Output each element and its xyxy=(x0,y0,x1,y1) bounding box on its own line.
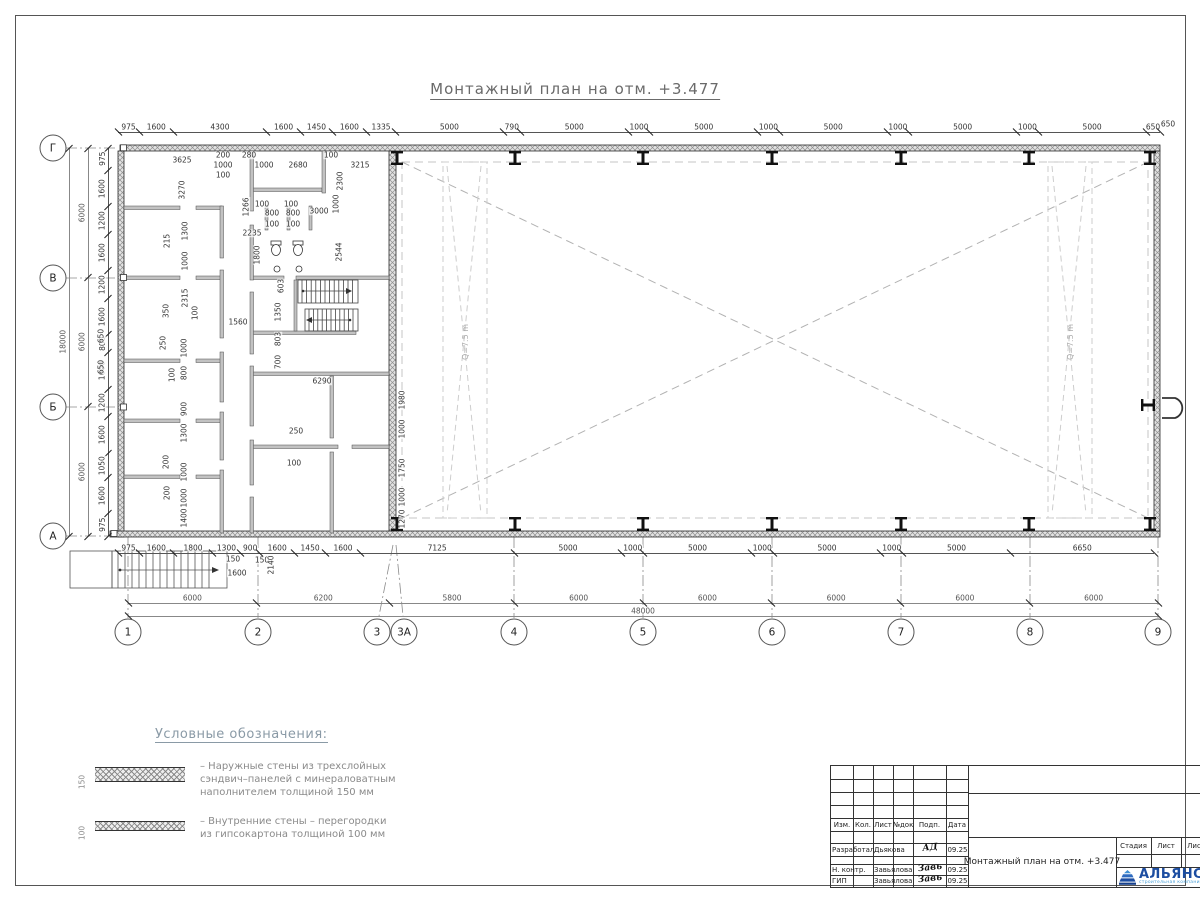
dim-label: 1000 xyxy=(181,251,189,271)
axis-col-7: 7 xyxy=(888,619,915,646)
dim-label: 1800 xyxy=(253,245,261,265)
logo-triangle-icon xyxy=(1119,870,1136,885)
dim-label: 1000 xyxy=(254,161,274,169)
dim-chain-bottom-total: 48000 xyxy=(128,605,1158,617)
dim-label: 1000 xyxy=(332,194,340,214)
dim-segment: 1300 xyxy=(212,542,240,553)
dim-label: 1000 xyxy=(180,462,188,482)
axis-col-9: 9 xyxy=(1145,619,1172,646)
stamp-role-gip: ГИП xyxy=(832,875,874,887)
dim-segment: 7125 xyxy=(360,542,514,553)
stamp-doc-title: Монтажный план на отм. +3.477 xyxy=(968,837,1116,887)
dim-label: 100 xyxy=(286,459,301,467)
dim-label: 1000 xyxy=(213,161,233,169)
dim-chain-left-spans: 600060006000 xyxy=(77,148,89,536)
dim-segment: 6000 xyxy=(128,592,257,603)
dim-segment: 5000 xyxy=(773,542,881,553)
dim-label: 1266 xyxy=(242,197,250,217)
stamp-role-ncontrol: Н. контр. xyxy=(832,864,874,875)
toilet-fixtures xyxy=(271,241,303,272)
exterior-stair xyxy=(70,551,227,588)
dim-label: 3625 xyxy=(172,156,192,164)
dim-segment: 1450 xyxy=(301,121,332,132)
logo-subtext: строительная компания xyxy=(1139,881,1200,886)
dim-label: 1000 xyxy=(180,488,188,508)
dim-segment: 6000 xyxy=(77,407,88,536)
stamp-list: Лист xyxy=(1151,837,1181,854)
dim-label: 350 xyxy=(162,303,170,318)
dim-label: 1750 xyxy=(398,458,406,478)
hall-dashed-markings xyxy=(402,162,1148,518)
drawing-sheet: Монтажный план на отм. +3.477 xyxy=(0,0,1200,900)
dim-label: 1000 xyxy=(398,487,406,507)
stamp-col-kol: Кол. xyxy=(853,818,873,831)
dim-segment: 48000 xyxy=(128,605,1158,616)
dim-segment: 1000 xyxy=(751,542,773,553)
stamp-name-ncontrol: Завьялова xyxy=(874,864,913,875)
dim-segment: 5000 xyxy=(514,542,622,553)
dim-label: 1400 xyxy=(180,508,188,528)
steel-columns xyxy=(391,151,1156,531)
dim-segment: 5000 xyxy=(903,542,1011,553)
dim-label: 1980 xyxy=(398,390,406,410)
dim-segment: 1600 xyxy=(260,542,295,553)
dim-segment: 1600 xyxy=(97,234,108,271)
dim-segment: 1000 xyxy=(1017,121,1039,132)
dim-label: 1270 xyxy=(398,509,406,529)
dim-label: 215 xyxy=(163,233,171,248)
dim-label: 800 xyxy=(264,209,279,217)
stamp-date-developer: 09.25 xyxy=(947,843,968,856)
company-logo: АЛЬЯНС строительная компания xyxy=(1119,867,1200,887)
dim-segment: 1600 xyxy=(326,542,361,553)
axis-col-3: 3 xyxy=(364,619,391,646)
dim-segment: 975 xyxy=(97,148,108,170)
dim-label: 1000 xyxy=(180,338,188,358)
dim-label: 2544 xyxy=(335,242,343,262)
stamp-stadia: Стадия xyxy=(1116,837,1151,854)
right-wall-ladder xyxy=(1162,398,1182,418)
legend-dim-100: 100 xyxy=(78,826,87,840)
dim-segment: 975 xyxy=(118,542,139,553)
stamp-col-izm: Изм. xyxy=(831,818,853,831)
dim-label: 2300 xyxy=(336,171,344,191)
stamp-col-podp: Подп. xyxy=(913,818,946,831)
dim-segment: 5000 xyxy=(779,121,887,132)
dim-segment: 18000 xyxy=(58,148,69,536)
dim-label: 3270 xyxy=(178,180,186,200)
dim-segment: 1600 xyxy=(332,121,367,132)
dim-label: 2140 xyxy=(267,555,275,575)
dim-segment: 1200 xyxy=(97,271,108,298)
dim-label: 200 xyxy=(215,151,230,159)
dim-label: 2680 xyxy=(288,161,308,169)
stamp-sig-developer: АД xyxy=(915,839,945,858)
dim-segment: 6000 xyxy=(77,148,88,277)
dim-label: 650 xyxy=(97,359,105,374)
dim-segment: 5000 xyxy=(644,542,752,553)
dim-label: Q=7.5 m xyxy=(462,323,470,360)
stamp-date-gip: 09.25 xyxy=(947,875,968,887)
dim-label: 1000 xyxy=(398,419,406,439)
dim-label: 2315 xyxy=(181,288,189,308)
dim-chain-bottom-inner: 9751600180013009001600145016007125500010… xyxy=(118,542,1154,554)
dim-label: 3000 xyxy=(309,207,329,215)
dim-label: 800 xyxy=(180,365,188,380)
dim-segment: 5800 xyxy=(390,592,514,603)
stamp-col-list: Лист xyxy=(873,818,893,831)
dim-label: 280 xyxy=(241,151,256,159)
axis-col-8: 8 xyxy=(1017,619,1044,646)
title-block: Изм. Кол. Лист №док Подп. Дата Разработа… xyxy=(830,765,1200,888)
stamp-col-ndok: №док xyxy=(893,818,913,831)
dim-label: 100 xyxy=(285,220,300,228)
dim-label: 100 xyxy=(215,171,230,179)
dim-label: 200 xyxy=(163,485,171,500)
dim-label: 1560 xyxy=(228,318,248,326)
axis-col-2: 2 xyxy=(245,619,272,646)
dim-segment: 6000 xyxy=(901,592,1030,603)
dim-chain-left-total: 18000 xyxy=(58,148,70,536)
dim-segment: 1600 xyxy=(139,121,174,132)
axis-row-G: Г xyxy=(40,135,67,162)
dim-label: 1600 xyxy=(227,569,247,577)
axis-row-V: В xyxy=(40,265,67,292)
legend-title: Условные обозначения: xyxy=(155,727,328,743)
dim-segment: 5000 xyxy=(520,121,628,132)
legend-swatch-exterior-wall xyxy=(95,767,185,782)
dim-label: 200 xyxy=(162,454,170,469)
axis-row-A: А xyxy=(40,523,67,550)
dim-segment: 5000 xyxy=(1038,121,1146,132)
dim-label: 3215 xyxy=(350,161,370,169)
dim-segment: 1050 xyxy=(97,453,108,477)
dim-segment: 6000 xyxy=(772,592,901,603)
dim-segment: 975 xyxy=(97,514,108,536)
dim-segment: 5000 xyxy=(395,121,503,132)
dim-segment: 1200 xyxy=(97,207,108,234)
dim-label: 650 xyxy=(1160,120,1175,128)
dim-segment: 6000 xyxy=(514,592,643,603)
dim-label: 1300 xyxy=(180,423,188,443)
dim-segment: 1335 xyxy=(367,121,396,132)
dim-label: 1350 xyxy=(274,302,282,322)
dim-label: 250 xyxy=(159,335,167,350)
dim-segment: 5000 xyxy=(650,121,758,132)
dim-segment: 6650 xyxy=(1010,542,1154,553)
dim-segment: 1450 xyxy=(294,542,325,553)
dim-label: 800 xyxy=(285,209,300,217)
dim-segment: 1600 xyxy=(97,170,108,207)
dim-label: 100 xyxy=(323,151,338,159)
dim-chain-bottom-axes: 60006200580060006000600060006000 xyxy=(128,592,1158,604)
dim-segment: 6000 xyxy=(643,592,772,603)
dim-segment: 1600 xyxy=(139,542,174,553)
axis-col-5: 5 xyxy=(630,619,657,646)
dim-segment: 1600 xyxy=(97,477,108,514)
dim-segment: 6000 xyxy=(1029,592,1158,603)
dim-segment: 5000 xyxy=(909,121,1017,132)
dim-label: 100 xyxy=(283,200,298,208)
dim-segment: 1600 xyxy=(97,417,108,454)
axis-col-6: 6 xyxy=(759,619,786,646)
dim-segment: 975 xyxy=(118,121,139,132)
stamp-role-developer: Разработал xyxy=(832,843,874,856)
dim-label: 100 xyxy=(264,220,279,228)
dim-segment: 1800 xyxy=(174,542,213,553)
stamp-sig-gip: Завь xyxy=(915,871,944,888)
dim-segment: 1000 xyxy=(758,121,780,132)
dim-segment: 6000 xyxy=(77,277,88,406)
legend-text-exterior-wall: – Наружные стены из трехслойных сэндвич–… xyxy=(200,760,396,799)
dim-segment: 650 xyxy=(1146,121,1160,132)
axis-col-4: 4 xyxy=(501,619,528,646)
dim-label: 603 xyxy=(277,278,285,293)
legend-swatch-interior-wall xyxy=(95,821,185,831)
dim-label: 250 xyxy=(288,427,303,435)
dim-label: 650 xyxy=(97,328,105,343)
axis-col-3A: 3А xyxy=(391,619,418,646)
dim-segment: 6200 xyxy=(257,592,390,603)
legend-text-interior-wall: – Внутренние стены – перегородки из гипс… xyxy=(200,815,386,841)
internal-stair xyxy=(298,280,358,331)
dim-chain-top: 9751600430016001450160013355000790500010… xyxy=(118,121,1160,133)
dim-label: 700 xyxy=(274,354,282,369)
legend-dim-150: 150 xyxy=(78,775,87,789)
stamp-name-gip: Завьялова xyxy=(874,875,913,887)
stamp-col-data: Дата xyxy=(946,818,968,831)
stamp-name-developer: Дьякова xyxy=(874,843,913,856)
axis-col-1: 1 xyxy=(115,619,142,646)
dim-segment: 4300 xyxy=(174,121,267,132)
dim-label: 100 xyxy=(168,367,176,382)
stamp-listov: Лист xyxy=(1181,837,1200,854)
dim-label: 6290 xyxy=(312,377,332,385)
dim-segment: 1600 xyxy=(266,121,301,132)
dim-label: 150 xyxy=(225,555,240,563)
dim-label: 1300 xyxy=(181,221,189,241)
axis-row-B: Б xyxy=(40,394,67,421)
dim-label: 2235 xyxy=(242,229,262,237)
dim-label: 100 xyxy=(254,200,269,208)
dim-segment: 1200 xyxy=(97,389,108,416)
dim-label: 100 xyxy=(191,305,199,320)
dim-label: Q=7.5 m xyxy=(1067,323,1075,360)
dim-label: 803 xyxy=(274,331,282,346)
dim-label: 900 xyxy=(180,401,188,416)
